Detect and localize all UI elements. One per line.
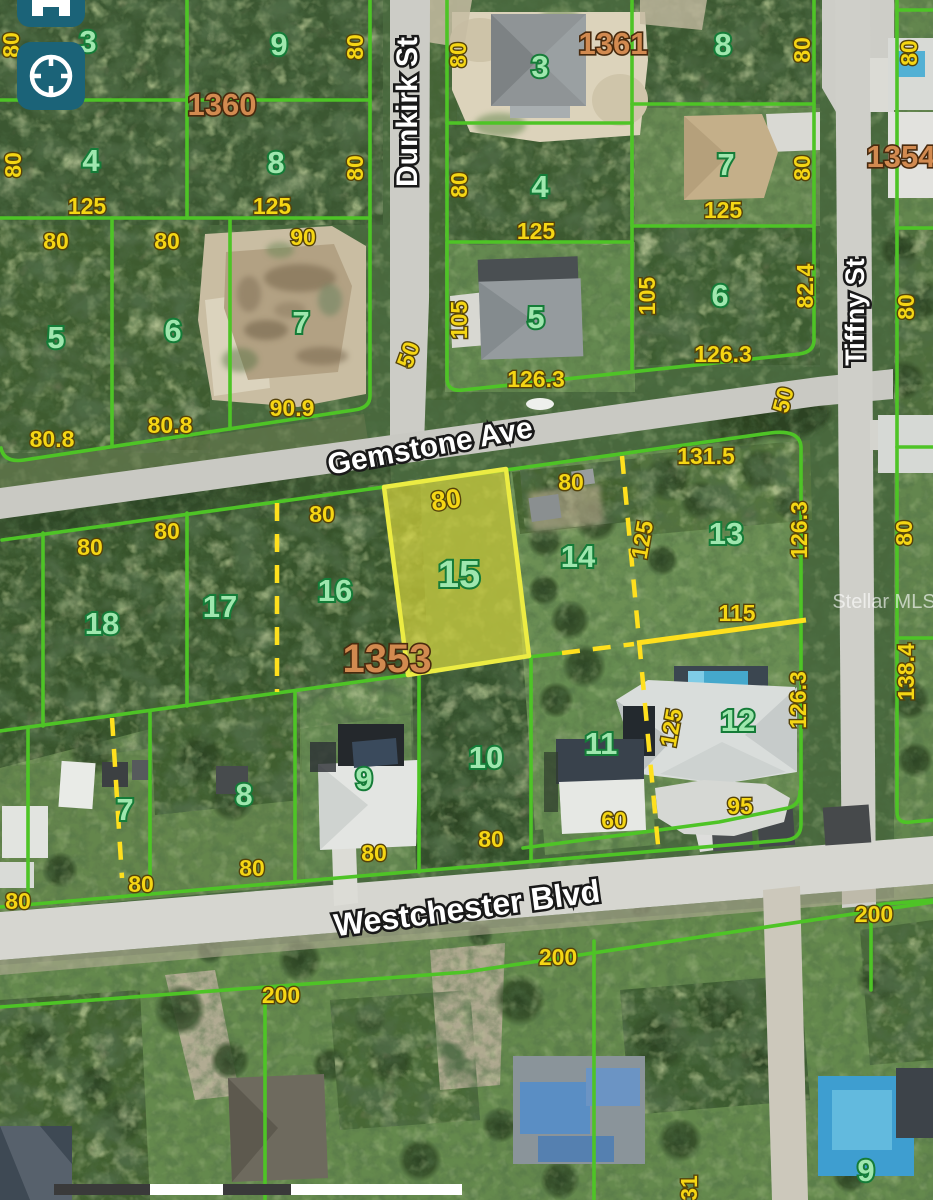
svg-text:80: 80 xyxy=(342,34,368,60)
svg-text:80: 80 xyxy=(789,155,815,181)
svg-text:126.3: 126.3 xyxy=(694,341,752,367)
svg-text:80: 80 xyxy=(154,518,180,544)
svg-text:125: 125 xyxy=(68,193,107,219)
svg-text:10: 10 xyxy=(469,740,503,775)
svg-text:200: 200 xyxy=(262,982,300,1008)
svg-text:80: 80 xyxy=(891,520,917,546)
svg-text:80: 80 xyxy=(0,152,26,178)
svg-text:80: 80 xyxy=(77,534,103,560)
svg-text:9: 9 xyxy=(270,27,287,62)
svg-text:14: 14 xyxy=(561,539,596,574)
svg-text:80: 80 xyxy=(558,469,584,495)
svg-text:1354: 1354 xyxy=(867,139,933,174)
svg-text:7: 7 xyxy=(292,305,309,340)
svg-text:31: 31 xyxy=(676,1175,702,1200)
svg-text:3: 3 xyxy=(531,49,548,84)
svg-text:80: 80 xyxy=(361,840,387,866)
svg-text:80: 80 xyxy=(445,42,471,68)
svg-text:80.8: 80.8 xyxy=(30,426,75,452)
svg-text:80: 80 xyxy=(154,228,180,254)
svg-text:125: 125 xyxy=(517,218,556,244)
svg-text:105: 105 xyxy=(634,277,660,316)
svg-text:80: 80 xyxy=(128,871,154,897)
svg-text:80: 80 xyxy=(446,172,472,198)
svg-text:126.3: 126.3 xyxy=(786,501,812,559)
svg-text:138.4: 138.4 xyxy=(893,643,919,701)
svg-text:95: 95 xyxy=(727,793,753,819)
svg-text:8: 8 xyxy=(714,27,731,62)
svg-text:105: 105 xyxy=(446,301,472,340)
svg-text:80: 80 xyxy=(43,228,69,254)
svg-text:131.5: 131.5 xyxy=(677,443,735,469)
svg-text:4: 4 xyxy=(82,143,100,178)
svg-text:9: 9 xyxy=(355,761,372,796)
svg-text:12: 12 xyxy=(721,703,755,738)
svg-text:6: 6 xyxy=(164,313,181,348)
svg-text:5: 5 xyxy=(527,300,544,335)
svg-text:90.9: 90.9 xyxy=(270,395,315,421)
svg-text:80: 80 xyxy=(239,855,265,881)
svg-text:18: 18 xyxy=(85,606,119,641)
svg-text:80: 80 xyxy=(342,155,368,181)
svg-text:Stellar MLS: Stellar MLS xyxy=(832,591,933,613)
svg-text:5: 5 xyxy=(47,320,64,355)
svg-text:60: 60 xyxy=(601,807,627,833)
svg-text:80: 80 xyxy=(893,294,919,320)
svg-text:4: 4 xyxy=(531,169,549,204)
svg-text:80: 80 xyxy=(789,37,815,63)
svg-text:200: 200 xyxy=(539,944,577,970)
svg-text:9: 9 xyxy=(857,1153,874,1188)
svg-text:80: 80 xyxy=(478,826,504,852)
svg-text:80: 80 xyxy=(896,40,922,66)
svg-text:16: 16 xyxy=(318,573,352,608)
svg-text:115: 115 xyxy=(718,600,755,626)
svg-text:7: 7 xyxy=(116,792,133,827)
svg-text:80: 80 xyxy=(5,888,31,914)
svg-text:200: 200 xyxy=(855,901,893,927)
svg-text:8: 8 xyxy=(267,145,284,180)
svg-text:125: 125 xyxy=(253,193,292,219)
svg-text:126.3: 126.3 xyxy=(785,671,811,729)
svg-text:82.4: 82.4 xyxy=(792,263,818,308)
svg-text:1353: 1353 xyxy=(343,637,432,681)
svg-text:90: 90 xyxy=(290,224,316,250)
svg-text:1360: 1360 xyxy=(188,87,257,122)
svg-text:7: 7 xyxy=(717,147,734,182)
svg-text:126.3: 126.3 xyxy=(507,366,565,392)
svg-text:125: 125 xyxy=(704,197,743,223)
svg-text:17: 17 xyxy=(203,589,237,624)
svg-text:8: 8 xyxy=(235,777,252,812)
svg-text:80: 80 xyxy=(309,501,335,527)
svg-text:80: 80 xyxy=(429,483,463,517)
svg-text:Tiffny St: Tiffny St xyxy=(840,258,870,366)
svg-text:11: 11 xyxy=(585,726,618,761)
svg-text:1361: 1361 xyxy=(579,26,648,61)
svg-text:13: 13 xyxy=(709,516,743,551)
svg-text:6: 6 xyxy=(711,278,728,313)
svg-text:15: 15 xyxy=(438,554,480,596)
svg-text:80.8: 80.8 xyxy=(148,412,193,438)
svg-text:Dunkirk St: Dunkirk St xyxy=(391,37,424,187)
